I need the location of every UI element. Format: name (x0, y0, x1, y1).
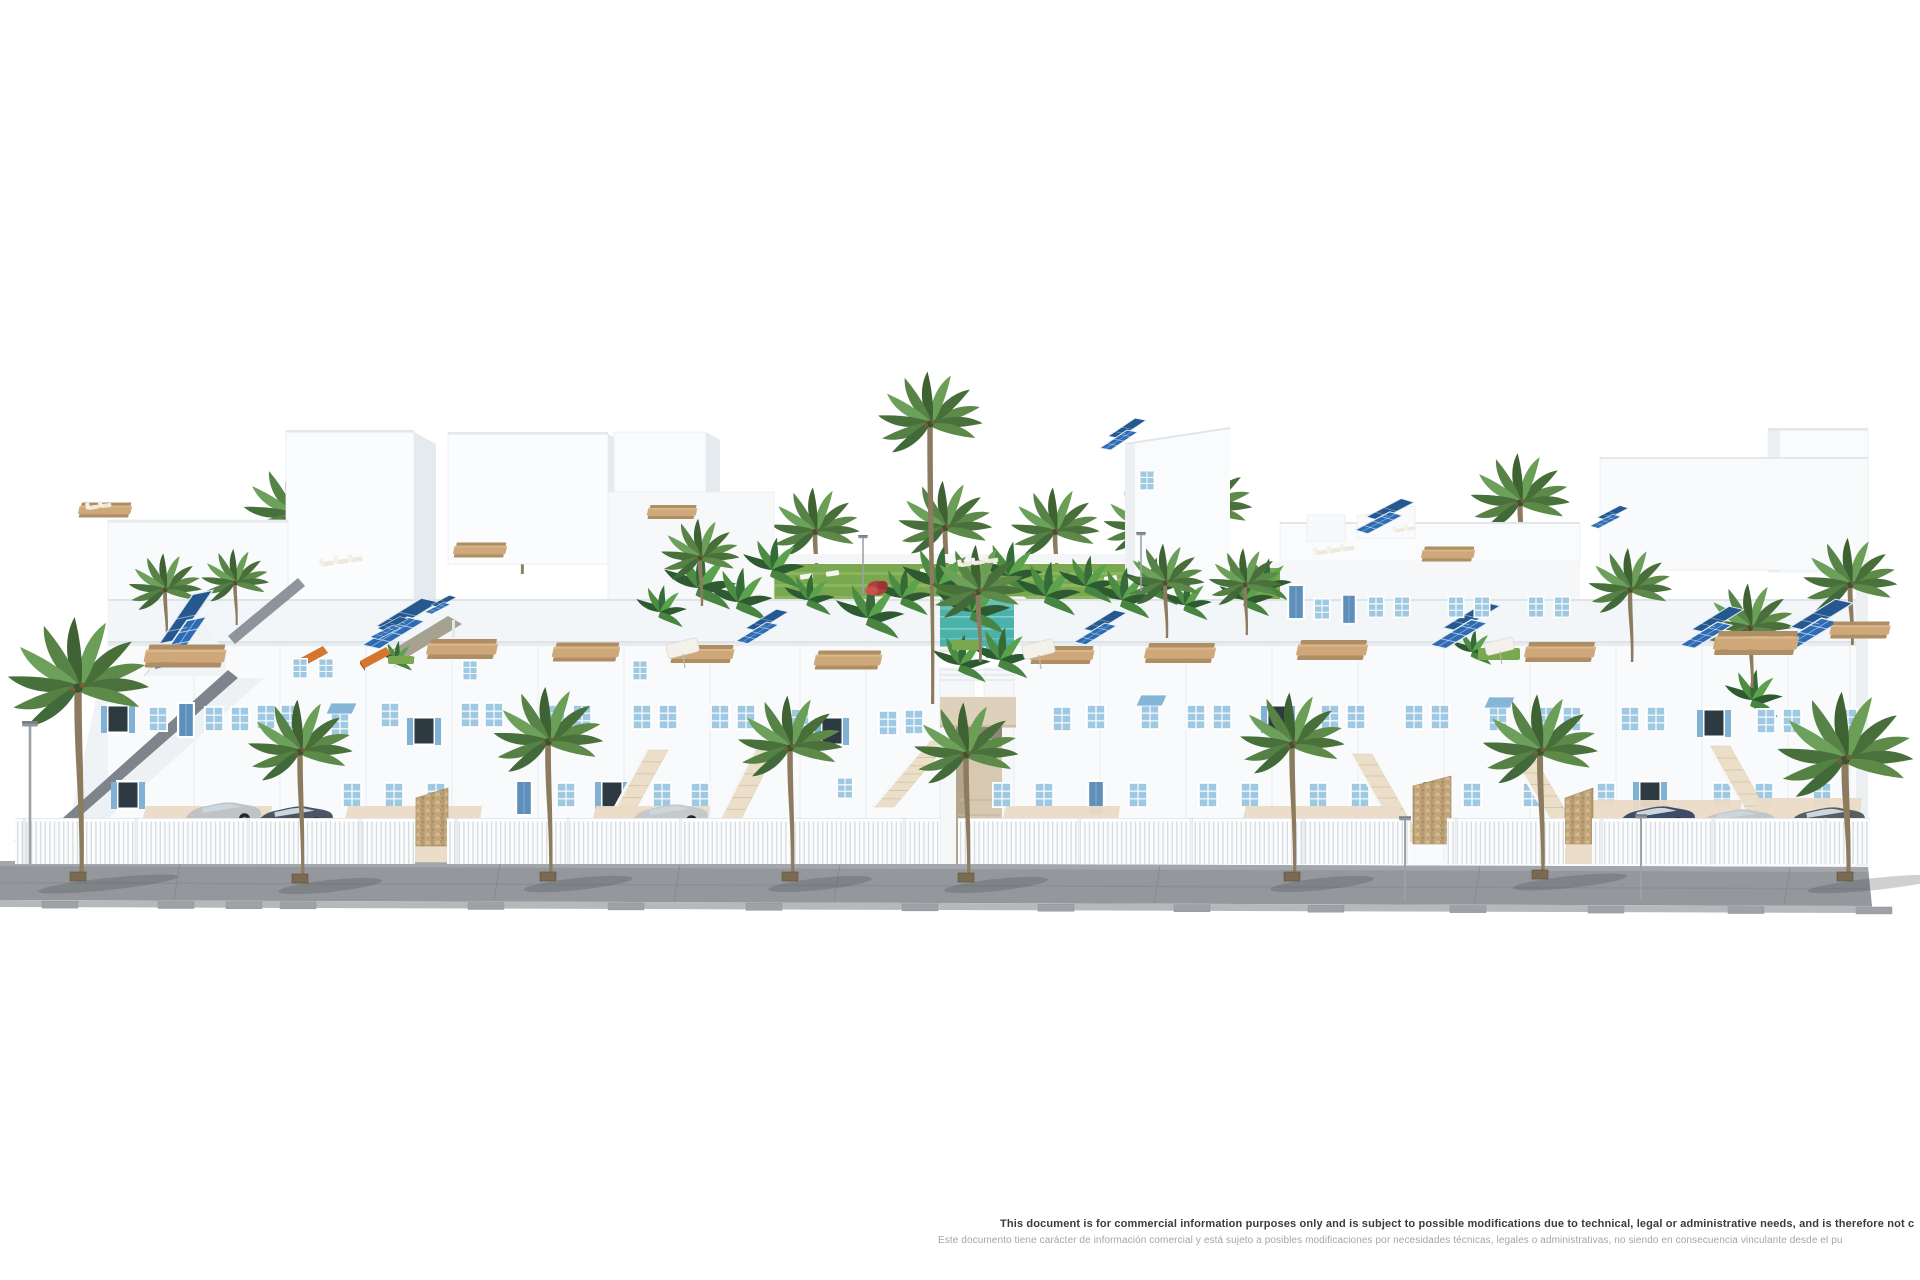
blue-window (1086, 704, 1106, 730)
fence-segment (15, 818, 415, 864)
blue-window (837, 777, 854, 799)
palm-planter (958, 873, 974, 882)
blue-window (1646, 706, 1666, 732)
blue-window (148, 706, 168, 732)
blue-window (1697, 708, 1731, 738)
blue-window (1034, 782, 1054, 808)
blue-window (292, 658, 308, 679)
blue-window (652, 782, 672, 808)
curb-stone (158, 902, 194, 909)
palm-planter (1284, 872, 1300, 881)
curb-stone (1308, 905, 1344, 912)
blue-door (177, 702, 195, 738)
curb-stone (1174, 905, 1210, 912)
curb-stone (1038, 904, 1074, 911)
rooftop-dining-table (1523, 642, 1597, 662)
street-sidewalk (0, 861, 1892, 914)
curb-stone (746, 903, 782, 910)
blue-window (1430, 704, 1450, 730)
blue-window (556, 782, 576, 808)
blue-window (1240, 782, 1260, 808)
blue-window (1462, 782, 1482, 808)
rooftop-dining-table (1420, 547, 1476, 562)
blue-window (318, 658, 334, 679)
blue-window (460, 702, 480, 728)
palm-planter (782, 872, 798, 881)
fence-segment (1447, 818, 1565, 864)
blue-window (1314, 598, 1331, 620)
curb-stone (226, 902, 262, 909)
blue-window (992, 782, 1012, 808)
blue-door (1287, 584, 1305, 620)
rooftop-dining-table (142, 645, 227, 668)
stone-wall (1565, 788, 1593, 844)
blue-window (1186, 704, 1206, 730)
blue-window (384, 782, 404, 808)
rooftop-dining-table (1828, 622, 1891, 639)
disclaimer-line-english: This document is for commercial informat… (1000, 1218, 1914, 1230)
palm-planter (1837, 872, 1853, 881)
blue-window (1394, 596, 1411, 618)
blue-window (204, 706, 224, 732)
rooftop-dining-table (452, 543, 508, 558)
blue-window (1052, 706, 1072, 732)
blue-window (1756, 708, 1776, 734)
blue-window (1554, 596, 1571, 618)
blue-window (462, 660, 478, 681)
fence-segment (447, 818, 940, 864)
blue-door (1341, 594, 1356, 625)
blue-window (1212, 704, 1232, 730)
rooftop-dining-table (813, 651, 884, 670)
blue-window (101, 704, 135, 734)
blue-window (904, 709, 924, 735)
rooftop-dining-table (1295, 640, 1369, 660)
stone-wall (1413, 776, 1451, 844)
blue-window (658, 704, 678, 730)
blue-window (878, 710, 898, 736)
stone-wall (416, 788, 448, 846)
blue-window (632, 660, 648, 681)
curb-stone (1728, 907, 1764, 914)
lawn-patch (388, 656, 414, 664)
blue-window (111, 780, 145, 810)
curb-stone (608, 903, 644, 910)
blue-window (710, 704, 730, 730)
blue-window (1620, 706, 1640, 732)
curb-stone (1450, 906, 1486, 913)
curb-stone (1856, 907, 1892, 914)
fence-segment (1592, 818, 1870, 864)
blue-window (380, 702, 400, 728)
blue-window (690, 782, 710, 808)
palm-planter (70, 872, 86, 881)
blue-window (1139, 470, 1155, 491)
blue-window (1528, 596, 1545, 618)
blue-door (515, 780, 533, 816)
lawn-patch (952, 640, 982, 650)
blue-window (1346, 704, 1366, 730)
rooftop-dining-table (425, 639, 499, 659)
palm-planter (292, 874, 308, 883)
rooftop-dining-table (551, 643, 622, 662)
palm-planter (1532, 870, 1548, 879)
blue-window (1448, 596, 1465, 618)
blue-window (1474, 596, 1491, 618)
rooftop-dining-table (646, 505, 698, 519)
blue-window (1198, 782, 1218, 808)
blue-window (1368, 596, 1385, 618)
blue-window (1404, 704, 1424, 730)
blue-window (1308, 782, 1328, 808)
curb-stone (280, 902, 316, 909)
blue-window (1128, 782, 1148, 808)
disclaimer-line-spanish: Este documento tiene carácter de informa… (938, 1235, 1843, 1246)
curb-stone (902, 904, 938, 911)
curb-stone (1588, 906, 1624, 913)
architectural-rendering: This document is for commercial informat… (0, 0, 1920, 1280)
blue-window (342, 782, 362, 808)
curb-stone (468, 903, 504, 910)
blue-window (484, 702, 504, 728)
blue-window (230, 706, 250, 732)
blue-window (632, 704, 652, 730)
residential-complex-render (0, 0, 1920, 1280)
fence-segment (958, 818, 1410, 864)
curb-stone (42, 901, 78, 908)
rooftop-dining-table (1711, 631, 1800, 655)
rooftop-dining-table (1143, 643, 1217, 663)
blue-window (407, 716, 441, 746)
palm-planter (540, 872, 556, 881)
